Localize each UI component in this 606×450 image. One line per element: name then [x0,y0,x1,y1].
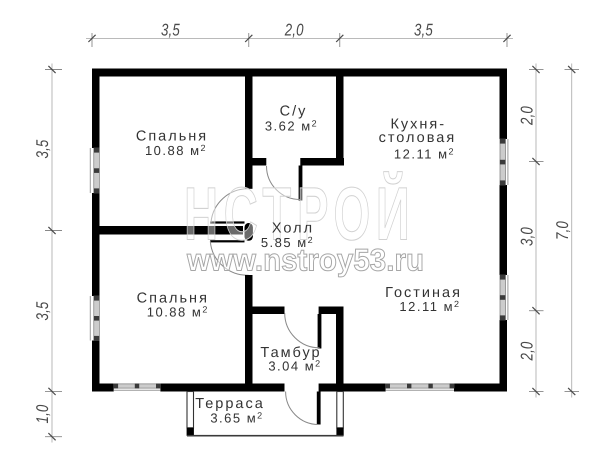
svg-text:3,5: 3,5 [161,21,180,40]
svg-text:3.04 м2: 3.04 м2 [268,358,321,373]
svg-text:1,0: 1,0 [33,404,52,423]
svg-text:3.65 м2: 3.65 м2 [210,410,263,425]
svg-text:7,0: 7,0 [553,221,572,240]
svg-text:столовая: столовая [379,130,457,146]
svg-text:5.85 м2: 5.85 м2 [261,235,314,250]
svg-text:3,5: 3,5 [33,139,52,158]
svg-text:10.88 м2: 10.88 м2 [145,143,207,158]
svg-text:С/у: С/у [280,104,308,120]
svg-text:2,0: 2,0 [518,106,537,126]
svg-text:2,0: 2,0 [284,21,304,40]
svg-text:3,0: 3,0 [518,227,537,246]
svg-text:12.11 м2: 12.11 м2 [394,146,455,161]
svg-text:12.11 м2: 12.11 м2 [399,299,460,314]
svg-text:3,5: 3,5 [33,301,52,320]
svg-text:3,5: 3,5 [414,21,433,40]
svg-text:3.62 м2: 3.62 м2 [265,118,318,133]
svg-text:Холл: Холл [272,220,314,236]
svg-text:2,0: 2,0 [518,341,537,361]
svg-text:Спальня: Спальня [136,128,208,144]
svg-text:10.88 м2: 10.88 м2 [147,305,209,320]
